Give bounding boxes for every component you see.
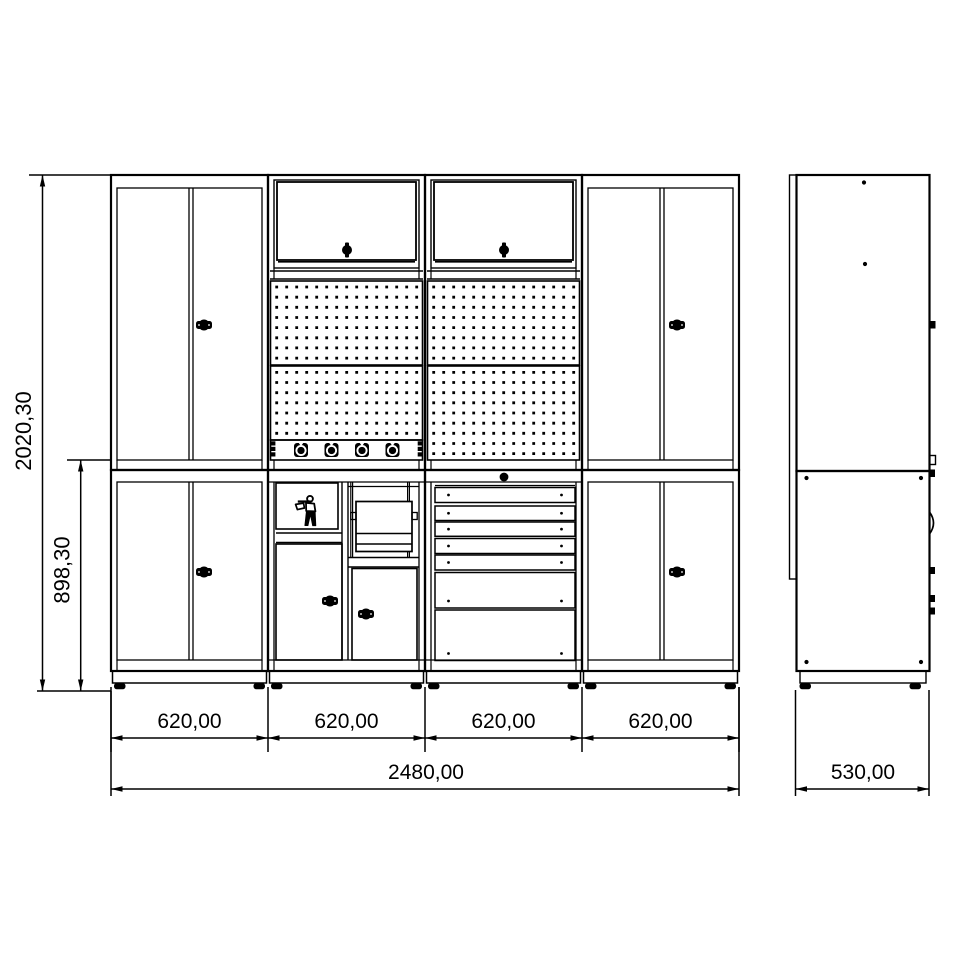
- svg-text:2020,30: 2020,30: [11, 391, 36, 471]
- svg-text:2480,00: 2480,00: [388, 761, 464, 784]
- svg-text:620,00: 620,00: [628, 710, 692, 733]
- svg-text:898,30: 898,30: [50, 536, 75, 603]
- svg-text:620,00: 620,00: [471, 710, 535, 733]
- svg-text:620,00: 620,00: [314, 710, 378, 733]
- svg-text:530,00: 530,00: [831, 761, 895, 784]
- svg-text:620,00: 620,00: [157, 710, 221, 733]
